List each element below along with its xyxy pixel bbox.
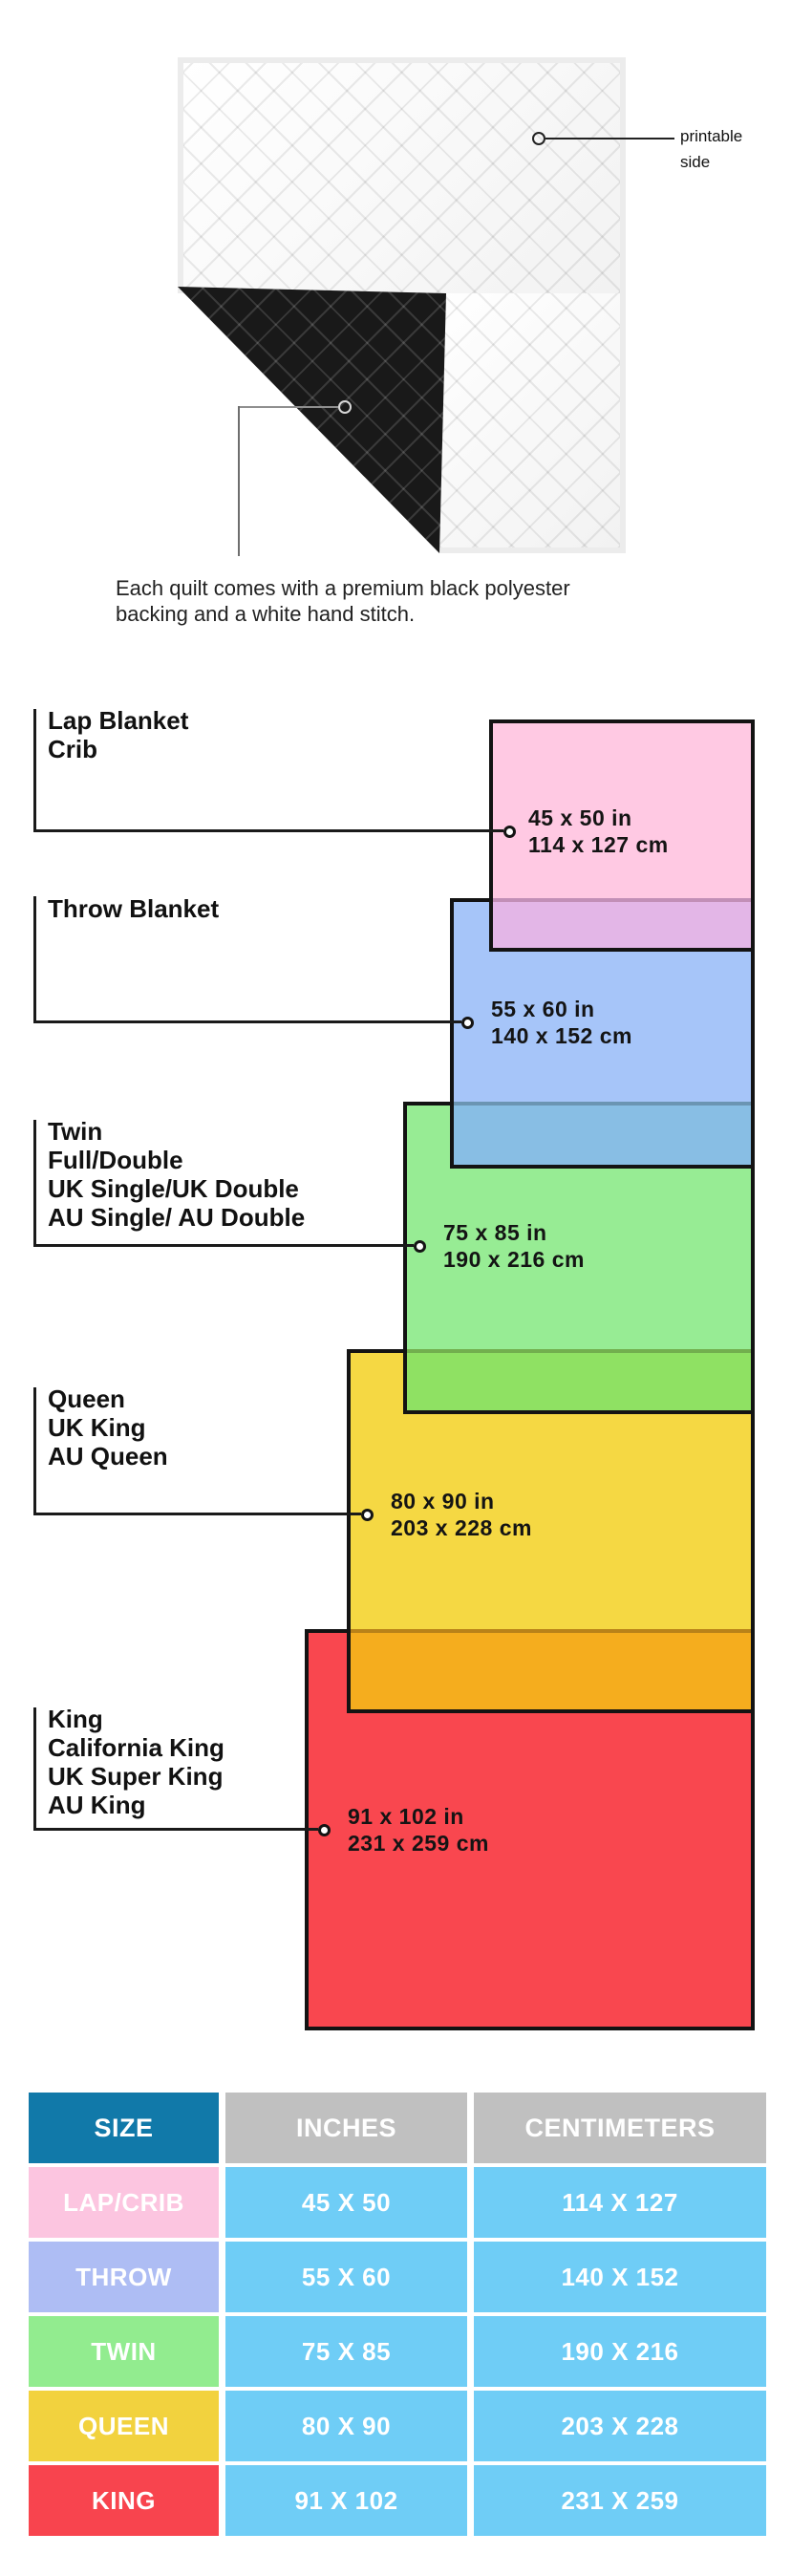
size-label-king: King California King UK Super King AU Ki… [48,1705,224,1819]
backing-caption-line: backing and a white hand stitch. [116,601,570,627]
dimension-text-queen: 80 x 90 in 203 x 228 cm [391,1488,532,1541]
dimension-centimeters: 140 x 152 cm [491,1022,632,1049]
size-label-line: Twin [48,1117,305,1146]
table-row-throw-inches: 55 X 60 [225,2242,467,2312]
size-label-line: Lap Blanket [48,706,188,735]
size-label-line: Queen [48,1385,168,1413]
overlap-twin-over-queen [407,1349,751,1410]
dimension-inches: 55 x 60 in [491,996,632,1022]
queen-leader-line-v [33,1387,36,1514]
dimension-text-throw: 55 x 60 in 140 x 152 cm [491,996,632,1049]
lap-leader-line-h [33,829,503,832]
printable-side-label: printable side [680,123,742,175]
table-header-size: SIZE [29,2093,219,2163]
quilt-photo-front-strip [439,293,626,553]
throw-leader-dot [461,1017,474,1029]
king-leader-dot [318,1824,331,1836]
throw-leader-line-v [33,896,36,1022]
twin-leader-dot [414,1240,426,1253]
size-label-twin: Twin Full/Double UK Single/UK Double AU … [48,1117,305,1232]
overlap-throw-over-twin [454,1102,751,1165]
size-label-queen: Queen UK King AU Queen [48,1385,168,1470]
backing-leader-dot [338,400,352,414]
dimension-inches: 80 x 90 in [391,1488,532,1514]
table-row-twin-size: TWIN [29,2316,219,2387]
queen-leader-dot [361,1509,374,1521]
king-leader-line-v [33,1707,36,1830]
size-label-line: UK King [48,1413,168,1442]
printable-side-leader-dot [532,132,545,145]
table-row-lap-centimeters: 114 X 127 [474,2167,766,2238]
twin-leader-line-v [33,1120,36,1246]
lap-leader-line-v [33,709,36,831]
table-row-throw-centimeters: 140 X 152 [474,2242,766,2312]
backing-caption: Each quilt comes with a premium black po… [116,575,570,627]
dimension-centimeters: 190 x 216 cm [443,1246,585,1273]
size-label-line: Crib [48,735,188,763]
dimension-centimeters: 231 x 259 cm [348,1830,489,1857]
table-header-centimeters: CENTIMETERS [474,2093,766,2163]
backing-leader-line-h [239,406,338,408]
table-row-lap-inches: 45 X 50 [225,2167,467,2238]
size-label-line: UK Single/UK Double [48,1174,305,1203]
dimension-centimeters: 114 x 127 cm [528,831,669,858]
dimension-inches: 75 x 85 in [443,1219,585,1246]
printable-side-leader-line [545,138,674,140]
backing-caption-line: Each quilt comes with a premium black po… [116,575,570,601]
size-label-lap: Lap Blanket Crib [48,706,188,763]
backing-leader-line-v [238,406,240,556]
overlap-queen-over-king [351,1629,751,1709]
queen-leader-line-h [33,1513,361,1515]
size-chart-infographic: printable side Each quilt comes with a p… [0,0,791,2576]
table-row-twin-centimeters: 190 X 216 [474,2316,766,2387]
size-label-line: King [48,1705,224,1733]
throw-leader-line-h [33,1020,461,1023]
lap-leader-dot [503,826,516,838]
dimension-text-king: 91 x 102 in 231 x 259 cm [348,1803,489,1857]
dimension-inches: 91 x 102 in [348,1803,489,1830]
size-label-throw: Throw Blanket [48,894,219,923]
table-row-lap-size: LAP/CRIB [29,2167,219,2238]
quilt-photo-front [178,57,626,293]
size-label-line: AU King [48,1791,224,1819]
size-label-line: AU Single/ AU Double [48,1203,305,1232]
table-row-king-inches: 91 X 102 [225,2465,467,2536]
dimension-text-twin: 75 x 85 in 190 x 216 cm [443,1219,585,1273]
size-label-line: Full/Double [48,1146,305,1174]
dimension-centimeters: 203 x 228 cm [391,1514,532,1541]
printable-side-label-line: side [680,149,742,175]
twin-leader-line-h [33,1244,414,1247]
dimension-inches: 45 x 50 in [528,805,669,831]
table-row-king-centimeters: 231 X 259 [474,2465,766,2536]
table-row-queen-inches: 80 X 90 [225,2391,467,2461]
printable-side-label-line: printable [680,123,742,149]
size-table: SIZE INCHES CENTIMETERS LAP/CRIB 45 X 50… [29,2093,766,2536]
size-label-line: UK Super King [48,1762,224,1791]
table-row-queen-centimeters: 203 X 228 [474,2391,766,2461]
king-leader-line-h [33,1828,318,1831]
table-header-inches: INCHES [225,2093,467,2163]
size-label-line: Throw Blanket [48,894,219,923]
overlap-lap-over-throw [493,898,751,948]
quilt-black-backing-fold [178,287,447,556]
table-row-queen-size: QUEEN [29,2391,219,2461]
size-label-line: AU Queen [48,1442,168,1470]
table-row-throw-size: THROW [29,2242,219,2312]
size-label-line: California King [48,1733,224,1762]
table-row-twin-inches: 75 X 85 [225,2316,467,2387]
dimension-text-lap: 45 x 50 in 114 x 127 cm [528,805,669,858]
table-row-king-size: KING [29,2465,219,2536]
